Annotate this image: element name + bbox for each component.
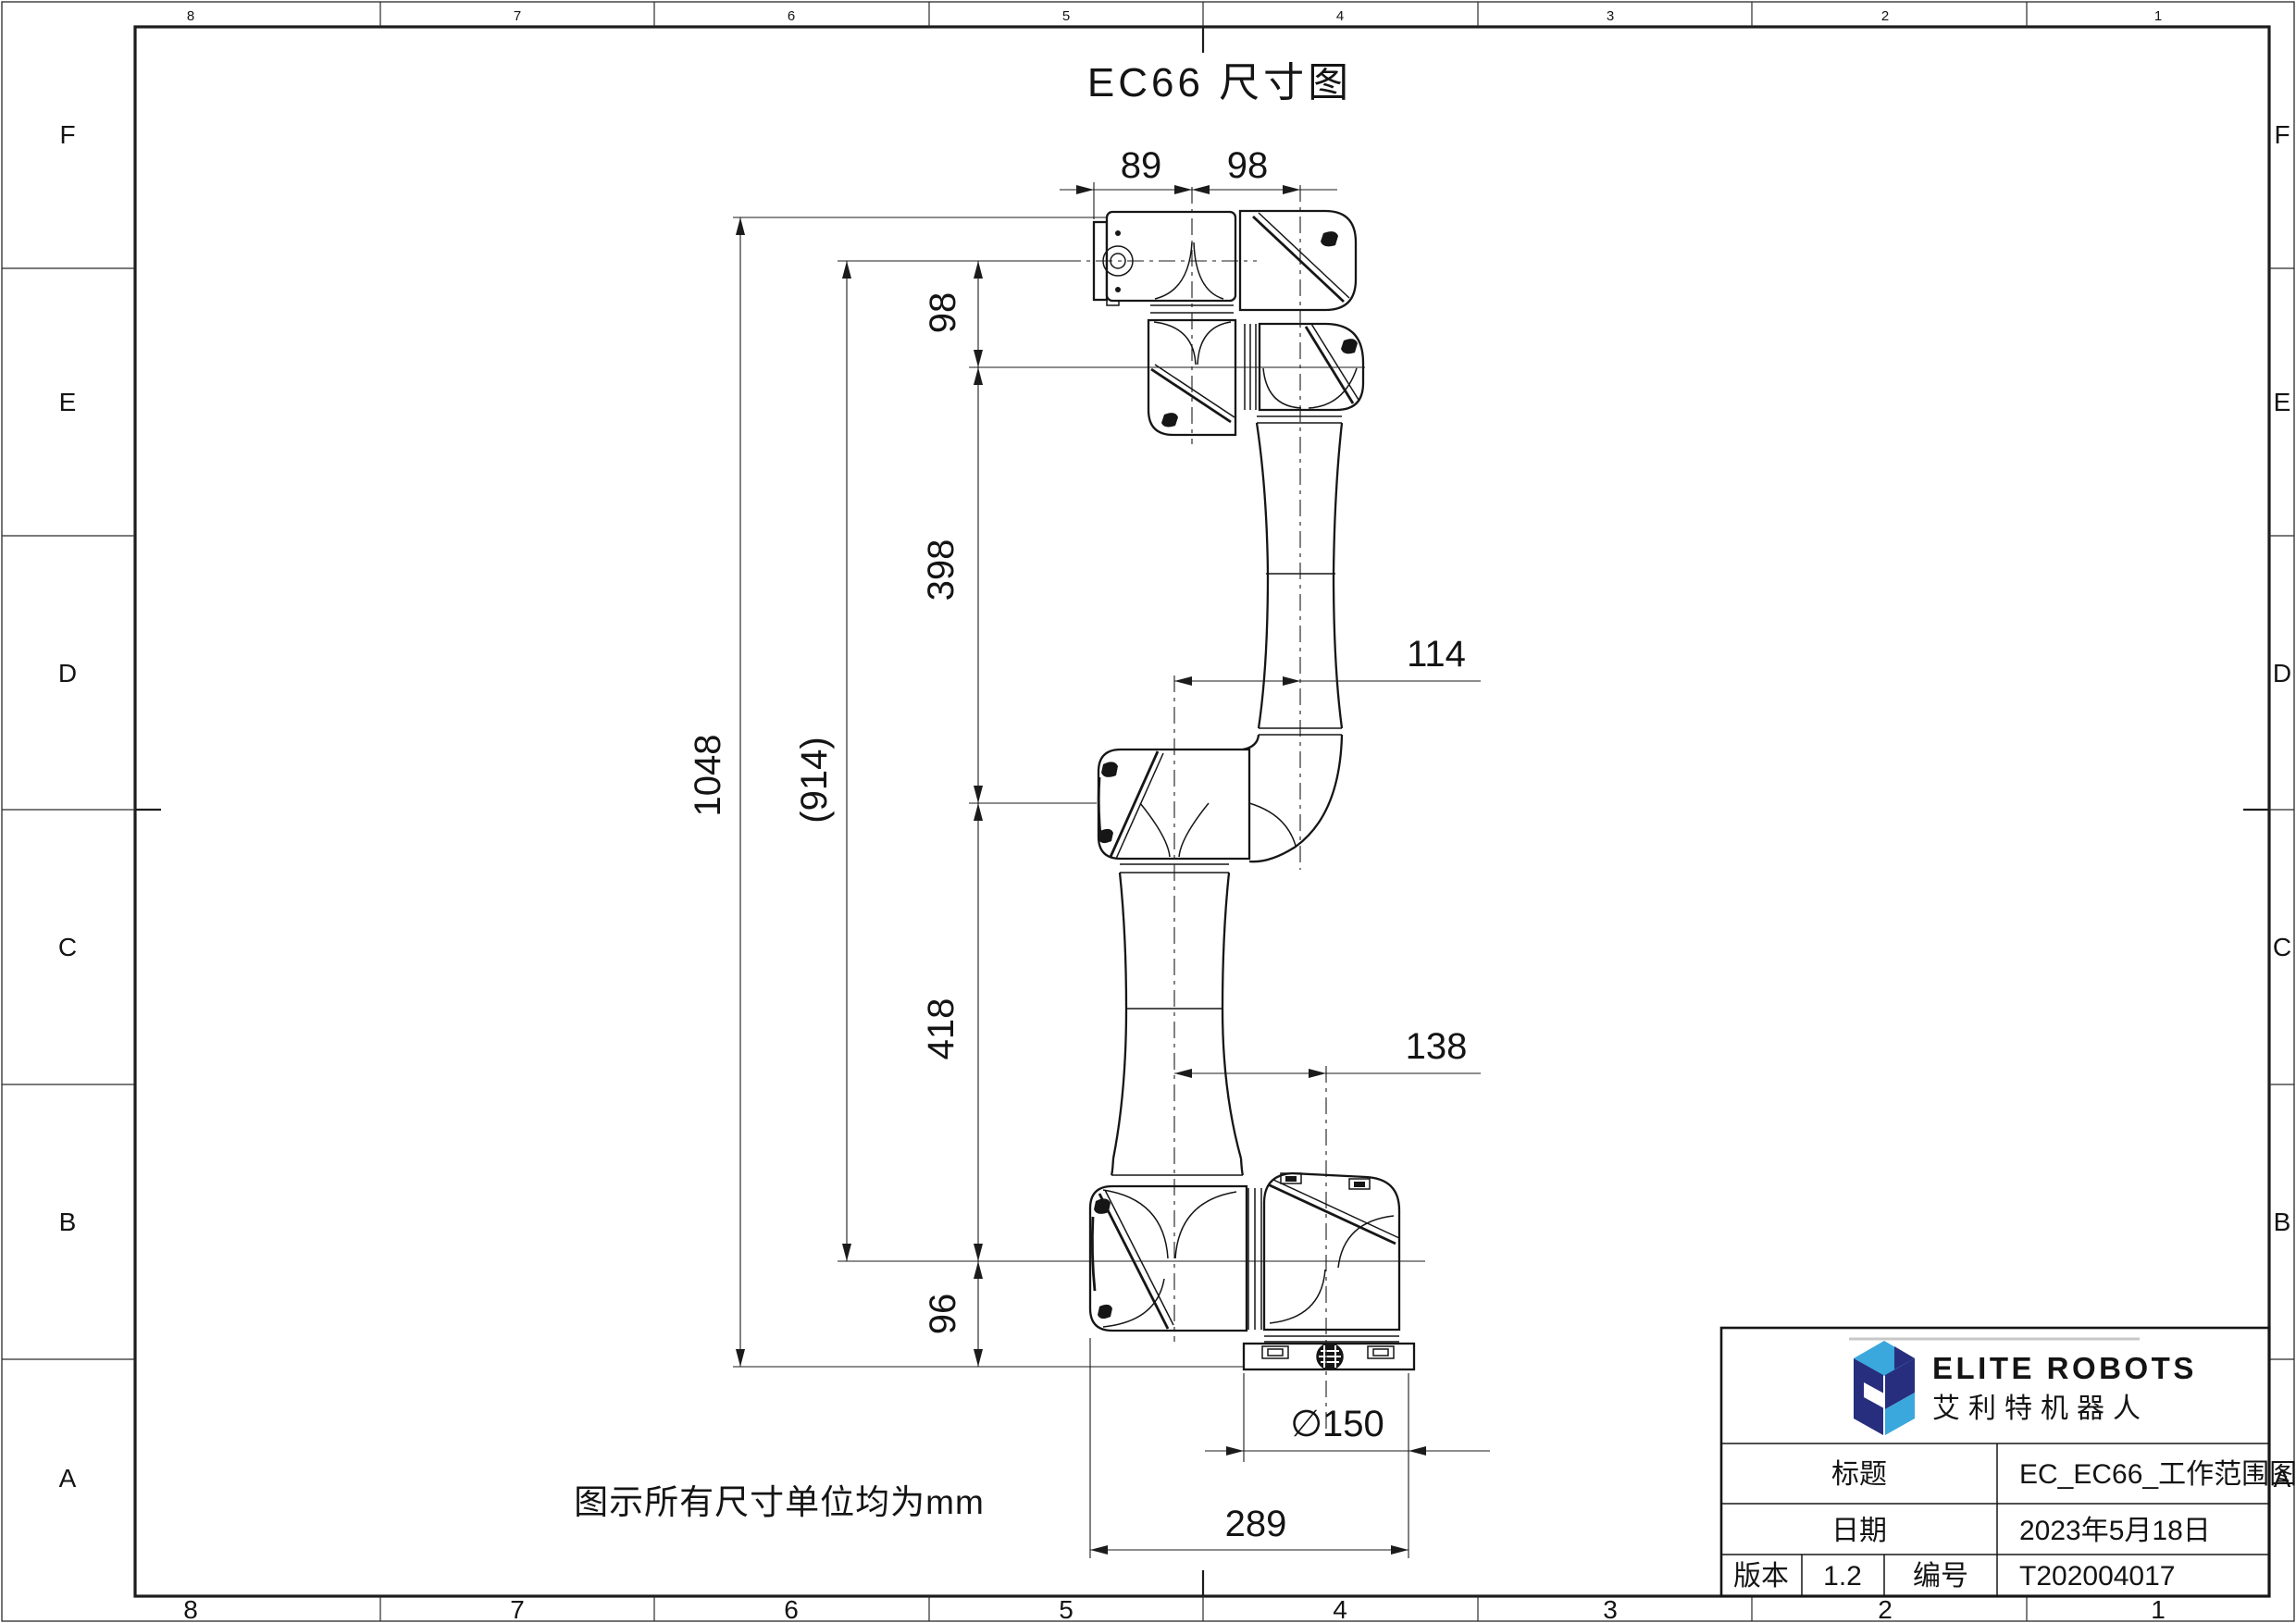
wrist3-housing xyxy=(1107,212,1235,301)
dim-1048: 1048 xyxy=(688,735,728,817)
zone-bottom-7: 7 xyxy=(510,1595,525,1623)
shoulder-housing xyxy=(1090,1186,1247,1331)
zone-right-B: B xyxy=(2274,1208,2291,1236)
base-housing xyxy=(1264,1173,1399,1342)
number-value: T202004017 xyxy=(2019,1561,2176,1592)
zone-top-4: 4 xyxy=(1336,8,1344,24)
zone-bottom-4: 4 xyxy=(1333,1595,1347,1623)
zone-bottom-8: 8 xyxy=(183,1595,198,1623)
date-label: 日期 xyxy=(1831,1516,1887,1546)
number-label: 编号 xyxy=(1913,1561,1968,1592)
title-value: EC_EC66_工作范围图 xyxy=(2019,1459,2296,1490)
robot-arm-drawing xyxy=(1064,185,1414,1432)
elbow-housing xyxy=(1098,750,1296,859)
zone-right-E: E xyxy=(2274,388,2291,416)
zone-right-C: C xyxy=(2273,933,2291,961)
company-name-en: ELITE ROBOTS xyxy=(1932,1351,2197,1385)
dim-96: 96 xyxy=(923,1294,963,1335)
dim-dia150: ∅150 xyxy=(1290,1404,1384,1444)
zone-bottom-3: 3 xyxy=(1603,1595,1618,1623)
zone-top-3: 3 xyxy=(1607,8,1614,24)
drawing-sheet: 8 7 6 5 4 3 2 1 8 7 6 5 4 3 2 1 F E D C … xyxy=(0,0,2296,1623)
zone-left-B: B xyxy=(59,1208,77,1236)
forearm-link xyxy=(1257,416,1342,735)
zone-top-2: 2 xyxy=(1881,8,1889,24)
zone-left-D: D xyxy=(58,659,77,688)
dim-98-side: 98 xyxy=(923,292,963,334)
dim-138: 138 xyxy=(1406,1026,1468,1067)
zone-right-D: D xyxy=(2273,659,2291,688)
zone-numbers-top: 8 7 6 5 4 3 2 1 xyxy=(187,8,2162,24)
zone-top-5: 5 xyxy=(1062,8,1070,24)
zone-bottom-6: 6 xyxy=(784,1595,799,1623)
zone-bottom-1: 1 xyxy=(2151,1595,2166,1623)
title-block: ELITE ROBOTS 艾利特机器人 标题 EC_EC66_工作范围图 日期 … xyxy=(1721,1328,2296,1596)
dim-114: 114 xyxy=(1407,634,1466,675)
wrist-j5-lobe xyxy=(1240,211,1356,310)
zone-right-F: F xyxy=(2274,120,2290,149)
drawing-title: EC66 尺寸图 xyxy=(1087,60,1352,105)
zone-top-6: 6 xyxy=(788,8,795,24)
zone-letters-right: F E D C B A xyxy=(2273,120,2291,1493)
zone-top-7: 7 xyxy=(514,8,521,24)
dim-914: (914) xyxy=(794,737,835,823)
zone-letters-left: F E D C B A xyxy=(58,120,77,1493)
zone-left-C: C xyxy=(58,933,77,961)
dim-98-top: 98 xyxy=(1227,145,1269,186)
version-value: 1.2 xyxy=(1823,1561,1862,1592)
elbow-neck xyxy=(1243,735,1259,750)
version-label: 版本 xyxy=(1733,1561,1789,1592)
zone-left-E: E xyxy=(59,388,77,416)
dim-89: 89 xyxy=(1121,145,1162,186)
drawing-canvas: 8 7 6 5 4 3 2 1 8 7 6 5 4 3 2 1 F E D C … xyxy=(0,0,2296,1623)
elbow-sweep xyxy=(1249,735,1342,861)
zone-top-1: 1 xyxy=(2154,8,2162,24)
company-name-cn: 艾利特机器人 xyxy=(1932,1394,2149,1424)
zone-left-A: A xyxy=(59,1464,77,1493)
dim-398: 398 xyxy=(921,539,962,601)
upper-arm-link xyxy=(1113,873,1241,1158)
zone-top-8: 8 xyxy=(187,8,194,24)
units-note: 图示所有尺寸单位均为mm xyxy=(574,1483,985,1521)
zone-bottom-2: 2 xyxy=(1878,1595,1893,1623)
zone-bottom-5: 5 xyxy=(1059,1595,1074,1623)
dim-289: 289 xyxy=(1225,1504,1287,1544)
title-label: 标题 xyxy=(1831,1459,1887,1490)
base-plate xyxy=(1244,1344,1414,1369)
zone-left-F: F xyxy=(59,120,75,149)
zone-numbers-bottom: 8 7 6 5 4 3 2 1 xyxy=(183,1595,2166,1623)
date-value: 2023年5月18日 xyxy=(2019,1516,2211,1546)
elite-robots-logo-icon xyxy=(1854,1341,1915,1435)
dim-418: 418 xyxy=(921,998,962,1060)
